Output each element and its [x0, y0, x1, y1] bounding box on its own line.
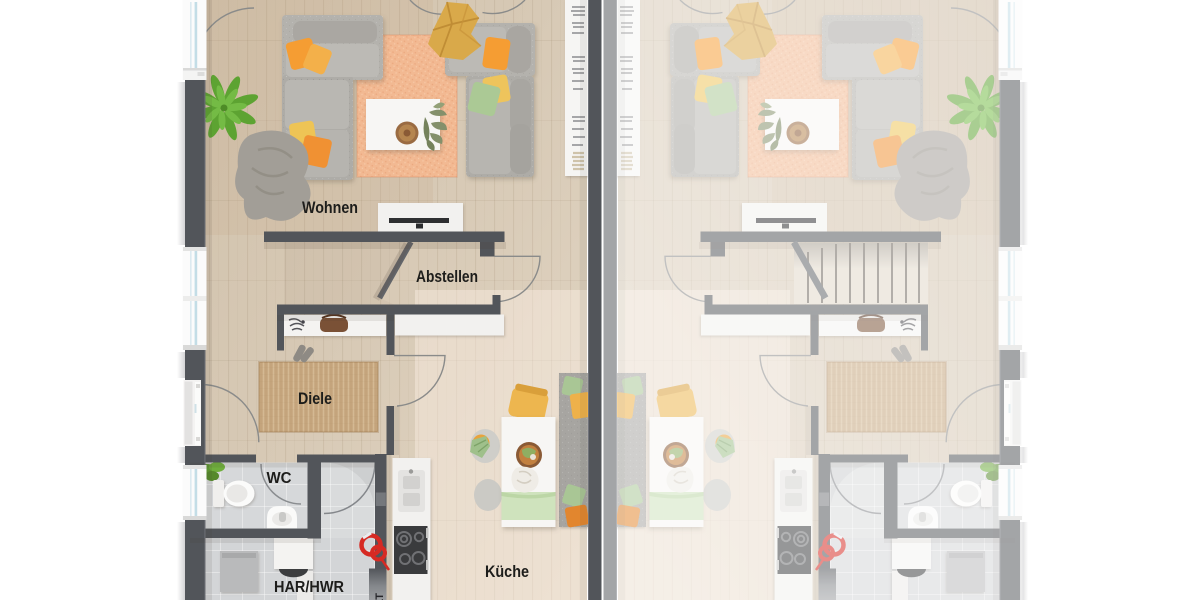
svg-text:WC: WC: [267, 470, 292, 487]
svg-text:ELT: ELT: [374, 593, 386, 600]
svg-text:Küche: Küche: [485, 562, 529, 581]
svg-text:Abstellen: Abstellen: [416, 267, 478, 286]
svg-text:HAR/HWR: HAR/HWR: [274, 579, 344, 596]
svg-text:Diele: Diele: [298, 389, 332, 408]
svg-text:Wohnen: Wohnen: [302, 198, 358, 217]
